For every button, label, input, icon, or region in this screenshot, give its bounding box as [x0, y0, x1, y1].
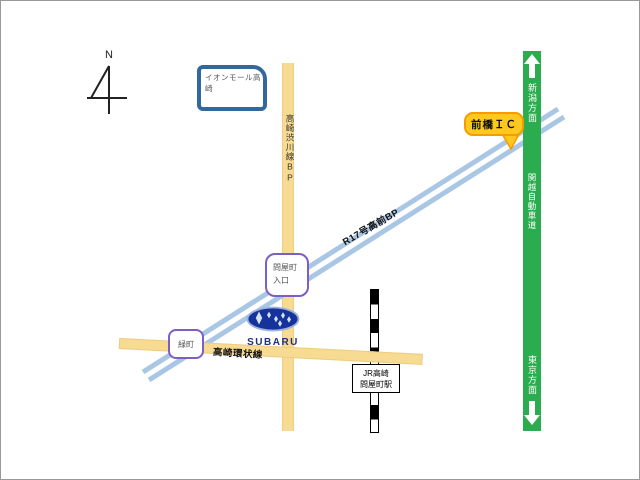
aeon-mall-label: イオンモール高崎	[205, 73, 261, 93]
subaru-logo-icon	[246, 306, 300, 332]
maebashi-ic-callout: 前橋ＩＣ	[464, 112, 524, 136]
access-map: N 高崎渋川線BP R17号高前BP 高崎環状線 新潟方面 関越自動車道 東京方…	[0, 0, 640, 480]
tonyamachi-entrance-line2: 入口	[273, 274, 307, 287]
tonyamachi-entrance-line1: 問屋町	[273, 261, 307, 274]
midoricho-marker: 緑町	[168, 329, 204, 359]
compass-north-label: N	[105, 49, 113, 61]
arrow-up-icon	[523, 54, 541, 78]
subaru-dealership: SUBARU	[246, 306, 300, 348]
road-shibukawa-bp-label: 高崎渋川線BP	[283, 114, 296, 184]
road-kanetsu-expressway: 新潟方面 関越自動車道 東京方面	[523, 51, 541, 431]
jr-station-line2: 問屋町駅	[360, 379, 392, 390]
jr-station-line1: JR高崎	[363, 368, 389, 379]
arrow-down-icon	[523, 401, 541, 425]
kanetsu-expressway-label: 関越自動車道	[523, 173, 541, 230]
road-r17-label: R17号高前BP	[340, 204, 402, 248]
aeon-mall-landmark: イオンモール高崎	[197, 65, 267, 111]
tonyamachi-entrance-marker: 問屋町 入口	[265, 253, 309, 297]
midoricho-label: 緑町	[178, 339, 194, 350]
direction-niigata-label: 新潟方面	[523, 83, 541, 123]
jr-station-label: JR高崎 問屋町駅	[352, 364, 400, 393]
subaru-logo-text: SUBARU	[246, 337, 300, 348]
north-compass: N	[85, 51, 131, 117]
direction-tokyo-label: 東京方面	[523, 355, 541, 395]
north-arrow-icon	[85, 64, 131, 116]
